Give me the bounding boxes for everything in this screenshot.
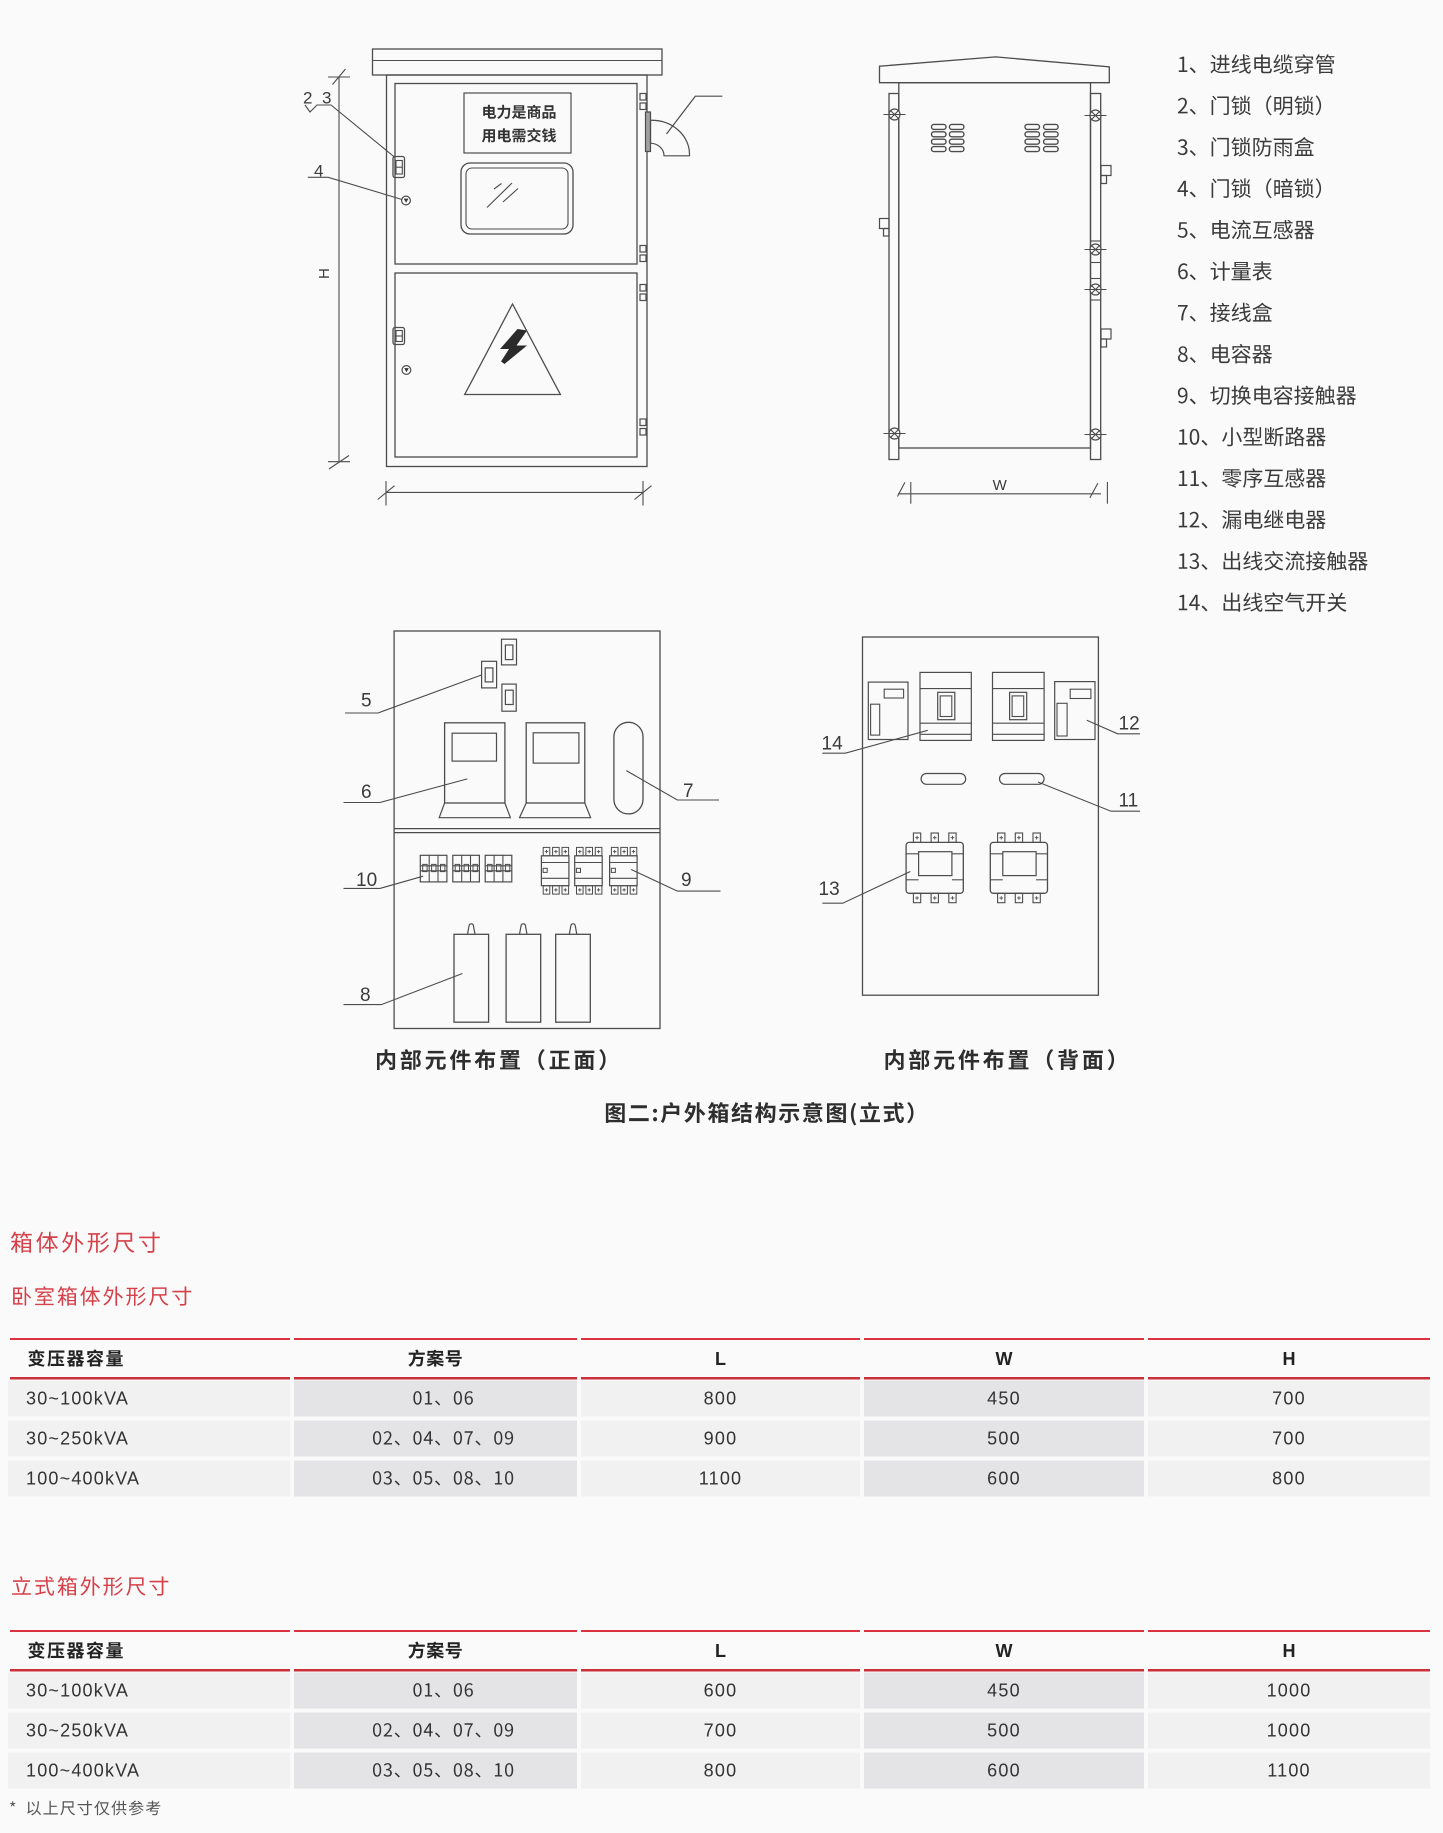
svg-text:100~400kVA: 100~400kVA: [26, 1761, 140, 1781]
svg-text:1100: 1100: [699, 1469, 743, 1489]
svg-text:10: 10: [356, 870, 377, 891]
svg-text:900: 900: [704, 1429, 738, 1449]
svg-text:600: 600: [987, 1469, 1021, 1489]
svg-text:600: 600: [704, 1681, 738, 1701]
svg-text:W: W: [993, 477, 1008, 494]
svg-text:500: 500: [987, 1721, 1021, 1741]
svg-text:1000: 1000: [1267, 1681, 1312, 1701]
svg-text:12: 12: [1119, 714, 1140, 735]
svg-text:450: 450: [987, 1389, 1021, 1409]
svg-text:L: L: [715, 1641, 726, 1661]
svg-text:800: 800: [704, 1389, 738, 1409]
svg-text:W: W: [996, 1641, 1013, 1661]
svg-text:8: 8: [360, 985, 371, 1006]
svg-text:5: 5: [361, 691, 372, 712]
svg-text:11: 11: [1119, 791, 1139, 812]
svg-text:H: H: [1283, 1349, 1296, 1369]
svg-text:700: 700: [704, 1721, 738, 1741]
svg-text:2: 2: [303, 89, 312, 108]
svg-text:100~400kVA: 100~400kVA: [26, 1469, 140, 1489]
svg-text:13: 13: [819, 879, 840, 900]
svg-text:L: L: [715, 1349, 726, 1369]
svg-text:14: 14: [822, 734, 844, 755]
svg-text:700: 700: [1272, 1429, 1306, 1449]
svg-text:30~100kVA: 30~100kVA: [26, 1389, 129, 1409]
svg-text:800: 800: [1272, 1469, 1306, 1489]
svg-text:9: 9: [681, 870, 692, 891]
svg-text:H: H: [316, 268, 333, 279]
svg-text:600: 600: [987, 1761, 1021, 1781]
svg-text:1100: 1100: [1267, 1761, 1311, 1781]
svg-text:W: W: [996, 1349, 1013, 1369]
svg-text:30~250kVA: 30~250kVA: [26, 1721, 129, 1741]
svg-text:H: H: [1283, 1641, 1296, 1661]
svg-text:500: 500: [987, 1429, 1021, 1449]
svg-text:1000: 1000: [1267, 1721, 1312, 1741]
svg-text:7: 7: [683, 781, 694, 802]
svg-text:6: 6: [361, 782, 372, 803]
svg-text:800: 800: [704, 1761, 738, 1781]
svg-text:700: 700: [1272, 1389, 1306, 1409]
svg-text:30~100kVA: 30~100kVA: [26, 1681, 129, 1701]
svg-text:30~250kVA: 30~250kVA: [26, 1429, 129, 1449]
svg-text:450: 450: [987, 1681, 1021, 1701]
